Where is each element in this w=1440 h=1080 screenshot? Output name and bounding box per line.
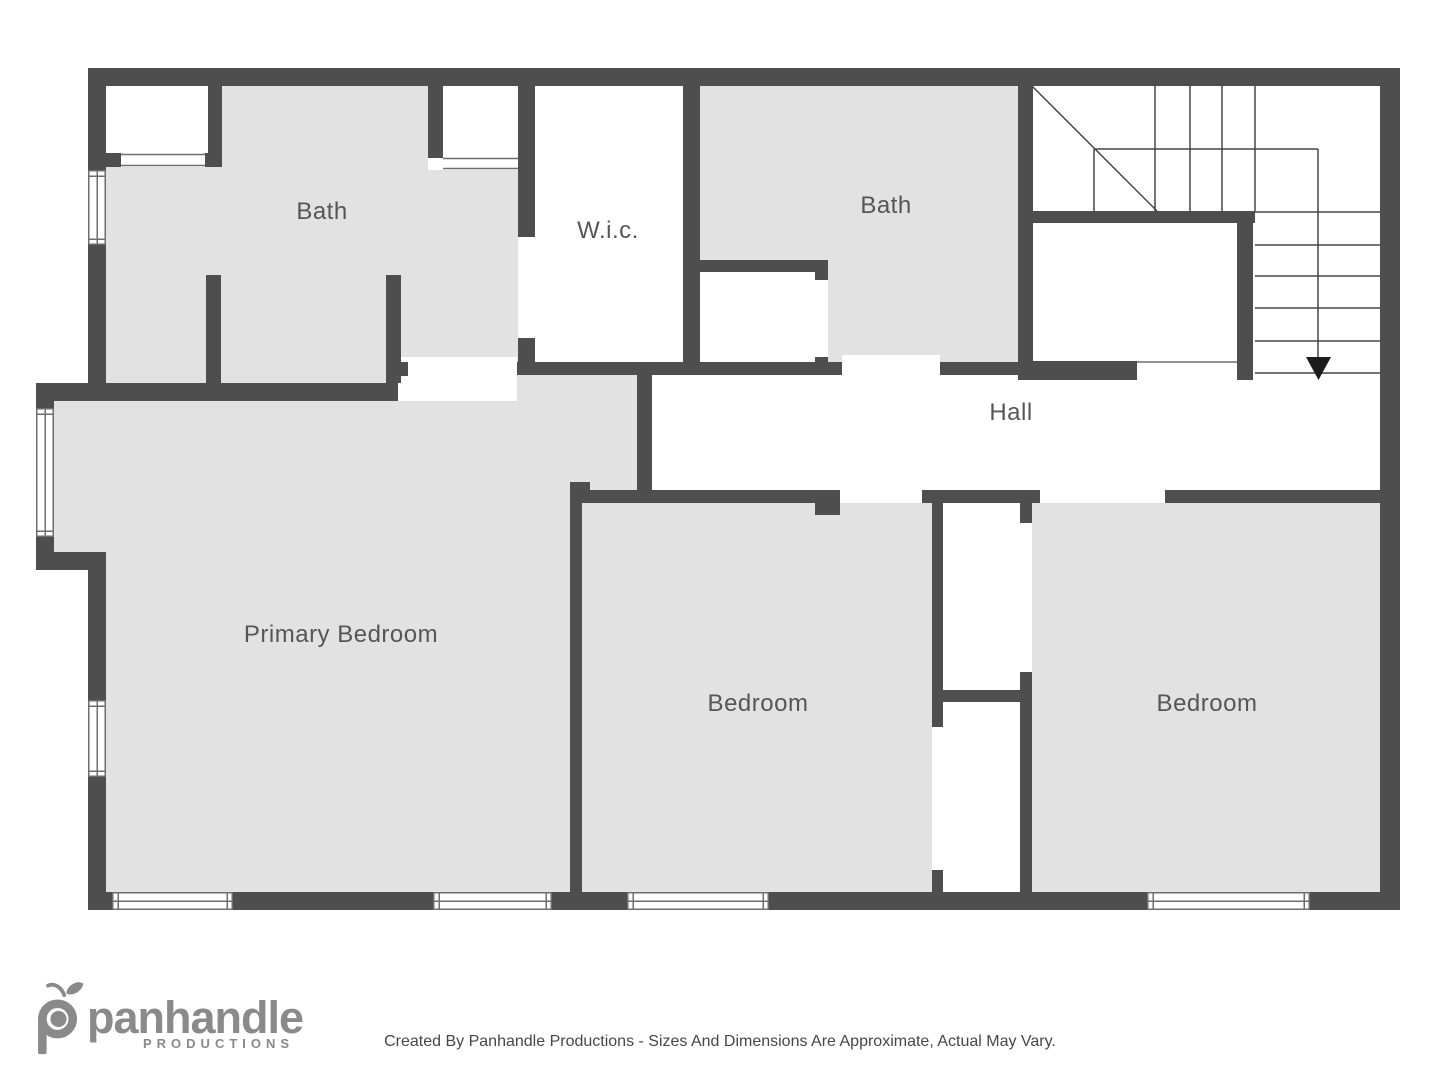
- wall-understair-closet-bottom: [1018, 361, 1137, 380]
- wall-wic-left-upper: [518, 86, 535, 237]
- wall-bedrooms-top-b: [922, 490, 1040, 503]
- stair-down-arrow: [1306, 357, 1331, 380]
- wall-exterior-right: [1380, 68, 1400, 910]
- room-floors: [54, 86, 1380, 892]
- wall-closet2-stub-bottom: [932, 870, 943, 892]
- window: [88, 700, 106, 777]
- wall-hall-top-b: [940, 362, 1018, 375]
- wall-closet-topleft-stub-l: [106, 153, 121, 167]
- wall-understair-closet-right: [1237, 223, 1253, 380]
- floorplan-drawing: [0, 0, 1440, 1080]
- wall-toilet-room-stub-t: [815, 272, 828, 280]
- wall-closet-topleft-right: [208, 86, 222, 153]
- window: [88, 170, 106, 245]
- wall-primary-stub: [570, 482, 590, 490]
- stairs: [1032, 86, 1380, 380]
- wall-bedroom-middle-left: [570, 503, 582, 892]
- doorway-primary-bath: [398, 357, 517, 401]
- wall-bumpout-top: [36, 383, 398, 401]
- wall-closet-top-left: [428, 86, 443, 158]
- window: [1147, 892, 1310, 910]
- wall-bumpout-bottom: [36, 552, 106, 570]
- wall-hall-primary-divider: [637, 375, 652, 503]
- wall-closet2-stub-top: [932, 690, 943, 727]
- wall-bedrooms-top-c: [1165, 490, 1380, 503]
- wall-bath1-door-jamb: [398, 362, 408, 376]
- window: [36, 408, 54, 537]
- wall-closet-divider: [932, 690, 1032, 702]
- wall-closetstrip-left: [932, 503, 943, 690]
- wall-wic-left-lower: [518, 338, 535, 366]
- wall-bath2-right: [1018, 86, 1033, 375]
- window: [627, 892, 769, 910]
- bedroom-right-floor: [1032, 503, 1380, 892]
- floorplan-page: BathW.i.c.BathHallPrimary BedroomBedroom…: [0, 0, 1440, 1080]
- primary-bedroom-passage-floor: [517, 375, 637, 405]
- wall-wic-right: [683, 86, 700, 375]
- doorway-understair-closet: [1137, 361, 1237, 380]
- toilet-room-floor: [695, 260, 828, 362]
- primary-bedroom-floor: [54, 401, 637, 892]
- wall-toilet-room-stub-b: [815, 357, 828, 367]
- wall-closet-topleft-stub-r: [205, 153, 222, 167]
- wall-closet2-right: [1020, 672, 1032, 892]
- doorway-bath-2: [842, 355, 940, 378]
- wall-hall-top-a: [517, 362, 842, 375]
- wall-closet1-stub-top: [1020, 503, 1032, 523]
- wall-bedrooms-top-a: [570, 490, 815, 503]
- wall-bath1-stub-1: [206, 275, 221, 383]
- window: [433, 892, 552, 910]
- wall-toilet-room-top: [695, 260, 828, 272]
- disclaimer-text: Created By Panhandle Productions - Sizes…: [0, 1033, 1440, 1051]
- wall-stair-landing: [1033, 211, 1255, 223]
- window: [112, 892, 233, 910]
- bedroom-middle-floor: [582, 503, 932, 892]
- wall-bedroom-door-jamb: [815, 490, 840, 515]
- wall-exterior-top: [88, 68, 1400, 86]
